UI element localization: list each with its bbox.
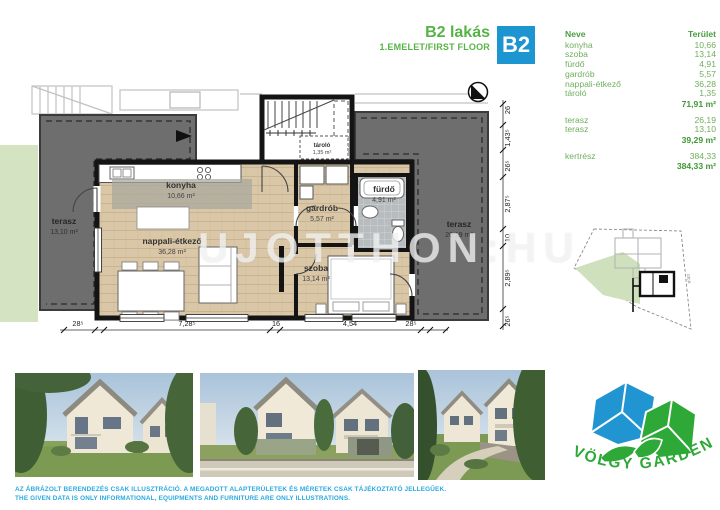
room-label: terasz: [447, 219, 472, 229]
kitchen-island: [137, 207, 189, 229]
svg-text:1,35 m²: 1,35 m²: [313, 150, 332, 156]
svg-text:28⁵: 28⁵: [405, 319, 416, 328]
subtotal-row: 384,33 m²: [565, 162, 716, 172]
dining-set: [118, 262, 184, 320]
floorplan-sheet: B2 lakás 1.EMELET/FIRST FLOOR B2 Neve Te…: [0, 0, 720, 510]
area-table: Neve Terület konyha10,66 szoba13,14 fürd…: [565, 30, 716, 172]
svg-text:26⁵: 26⁵: [503, 315, 512, 326]
render-photo-1: [15, 373, 193, 477]
svg-text:2,89⁵: 2,89⁵: [503, 269, 512, 286]
svg-text:1,43⁵: 1,43⁵: [503, 129, 512, 146]
disclaimer-line-en: THE GIVEN DATA IS ONLY INFORMATIONAL, EQ…: [15, 494, 446, 503]
svg-text:26: 26: [503, 106, 512, 114]
svg-text:2,87⁵: 2,87⁵: [503, 195, 512, 212]
sofa: [199, 247, 237, 303]
north-compass-icon: [469, 83, 488, 102]
table-row: kertrész384,33: [565, 152, 716, 162]
room-label: gardrób: [306, 203, 338, 213]
render-photo-3: [418, 370, 545, 480]
table-header-row: Neve Terület: [565, 30, 716, 40]
table-row: tároló1,35: [565, 89, 716, 99]
disclaimer-line-hu: AZ ÁBRÁZOLT BERENDEZÉS CSAK ILLUSZTRÁCIÓ…: [15, 485, 446, 494]
highlighted-unit: [633, 272, 674, 312]
svg-text:10: 10: [503, 234, 512, 242]
nightstand: [396, 304, 406, 314]
volgy-garden-logo: VÖLGY GARDEN: [562, 370, 717, 482]
svg-text:4,91 m²: 4,91 m²: [372, 197, 396, 204]
room-label: szoba: [304, 263, 328, 273]
wall-segment: [279, 246, 284, 292]
svg-text:4,54: 4,54: [343, 319, 357, 328]
staircase: [262, 97, 352, 162]
room-label: fürdő: [373, 184, 395, 194]
table-row: szoba13,14: [565, 50, 716, 60]
floor-plan-drawing: konyha 10,66 m² nappali-étkező 36,28 m² …: [0, 78, 540, 348]
col-name-header: Neve: [565, 30, 586, 40]
room-label: konyha: [166, 180, 196, 190]
subtotal-row: 39,29 m²: [565, 136, 716, 146]
dimension-chain-right: 26 1,43⁵ 26⁵ 2,87⁵ 10 2,89⁵ 26⁵: [500, 100, 512, 330]
render-photo-2: [200, 373, 414, 477]
svg-text:16: 16: [272, 319, 280, 328]
svg-text:7,28⁵: 7,28⁵: [178, 319, 195, 328]
svg-text:13,14 m²: 13,14 m²: [302, 276, 330, 283]
svg-text:26⁵: 26⁵: [503, 160, 512, 171]
table-row: nappali-étkező36,28: [565, 80, 716, 90]
disclaimer: AZ ÁBRÁZOLT BERENDEZÉS CSAK ILLUSZTRÁCIÓ…: [15, 485, 446, 504]
subtotal-row: 71,91 m²: [565, 100, 716, 110]
nightstand: [316, 304, 326, 314]
garden-strip: [0, 145, 38, 322]
garden-area: [575, 252, 640, 304]
apartment-badge: B2: [497, 26, 535, 64]
page-title-block: B2 lakás 1.EMELET/FIRST FLOOR: [300, 24, 490, 53]
room-label: tároló: [314, 143, 331, 149]
bed: [328, 256, 394, 314]
svg-text:28⁵: 28⁵: [72, 319, 83, 328]
svg-text:10,66 m²: 10,66 m²: [167, 193, 195, 200]
floor-subtitle: 1.EMELET/FIRST FLOOR: [300, 42, 490, 52]
svg-text:26,19 m²: 26,19 m²: [445, 232, 473, 239]
street-label: utca: [685, 274, 692, 284]
svg-text:5,57 m²: 5,57 m²: [310, 216, 334, 223]
washbasin: [362, 206, 378, 218]
svg-text:36,28 m²: 36,28 m²: [158, 249, 186, 256]
apartment-title: B2 lakás: [300, 24, 490, 42]
svg-text:13,10 m²: 13,10 m²: [50, 229, 78, 236]
col-area-header: Terület: [688, 30, 716, 40]
room-label: terasz: [52, 216, 77, 226]
table-row: terasz13,10: [565, 125, 716, 135]
site-plan-map: utca: [563, 216, 718, 338]
toilet: [393, 227, 404, 242]
room-label: nappali-étkező: [142, 236, 201, 246]
